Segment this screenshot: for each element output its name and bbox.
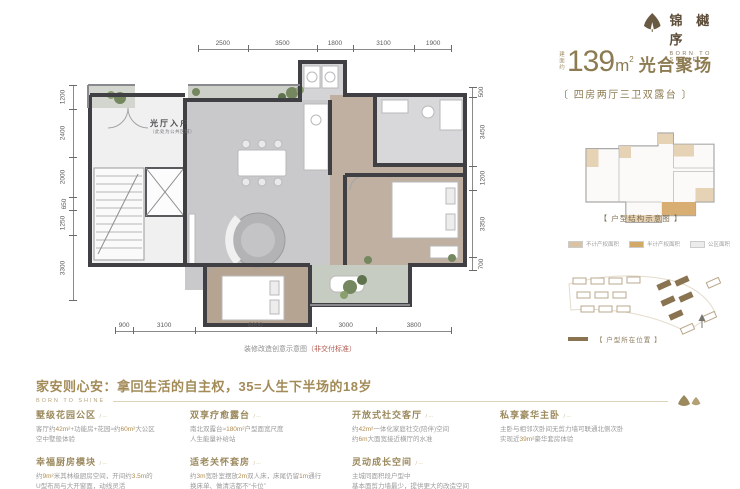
- feature-title: 墅级花园公区 / ⋯: [36, 408, 186, 421]
- feature-body: 主卧与相邻次卧间无剪力墙可联通北侧次卧实现近39m²豪华套房体验: [500, 425, 680, 445]
- plan-caption: 装修改造创意示意图（非交付标准）: [150, 344, 450, 354]
- dimension-value: 2000: [62, 157, 74, 197]
- plan-caption-note: （非交付标准）: [307, 346, 356, 353]
- dimension-value: 3000: [316, 322, 376, 332]
- legend-label: 不计产权面积: [586, 240, 619, 248]
- legend-label: 公区面积: [708, 240, 730, 248]
- entry-hall-label: 光厅入户: [150, 118, 190, 129]
- feature-title: 灵动成长空间 / ⋯: [352, 455, 498, 468]
- floorplan-poster-page: 25003500180031001900 9003100600030003800…: [0, 0, 740, 489]
- unit-subtitle: 〔 四房两厅三卫双露台 〕: [558, 86, 693, 101]
- feature-body: 约3m宽卧室摆放2m双人床，床尾仍留1m通行换床单、做清洁都不“卡位”: [190, 472, 348, 489]
- footer-brandline: BORN TO SHINE: [36, 394, 704, 408]
- feature-title: 私享豪华主卧 / ⋯: [500, 408, 680, 421]
- dimension-right: 500345012003350700: [472, 87, 484, 271]
- dimension-value: 3300: [62, 235, 74, 301]
- dimension-left: 12002400200065012503300: [62, 85, 74, 301]
- feature-title: 开放式社交客厅 / ⋯: [352, 408, 498, 421]
- legend-item: 公区面积: [690, 240, 730, 248]
- feature-body: 南北双露台≈180m²户型面宽尺度人生能量补给站: [190, 425, 348, 445]
- dimension-value: 3100: [353, 40, 415, 50]
- dimension-value: 3100: [133, 322, 195, 332]
- feature-title: 幸福厨房模块 / ⋯: [36, 455, 186, 468]
- structure-caption: 【 户型结构示意图 】: [556, 213, 726, 224]
- brand-name: 锦 樾 序: [669, 10, 740, 48]
- dimension-bottom: 9003100600030003800: [115, 322, 452, 332]
- area-unit: m2: [615, 56, 634, 74]
- legend-swatch: [629, 241, 644, 248]
- dimension-value: 2500: [198, 40, 248, 50]
- feature-column-2: 双享疗愈露台 / ⋯南北双露台≈180m²户型面宽尺度人生能量补给站适老关怀套房…: [190, 408, 348, 489]
- dimension-value: 6000: [195, 322, 315, 332]
- feature-column-4: 私享豪华主卧 / ⋯主卧与相邻次卧间无剪力墙可联通北侧次卧实现近39m²豪华套房…: [500, 408, 680, 455]
- dimension-value: 1250: [62, 210, 74, 235]
- dimension-value: 3450: [472, 97, 484, 166]
- ginkgo-leaf-icon: [642, 10, 662, 34]
- dimension-value: 3800: [376, 322, 452, 332]
- feature-body: 主城同面积段户型中基本面剪力墙最少，提供更大的改造空间: [352, 472, 498, 489]
- legend-item: 不计产权面积: [568, 240, 619, 248]
- legend-swatch: [568, 241, 583, 248]
- unit-slogan: 光合聚场: [639, 57, 713, 74]
- feature-title: 适老关怀套房 / ⋯: [190, 455, 348, 468]
- dimension-top: 25003500180031001900: [198, 40, 452, 50]
- feature-body: 客厅约42m²+功能房+花园≈约60m²大公区空中墅般体验: [36, 425, 186, 445]
- structure-legend: 不计产权面积半计产权面积公区面积: [568, 240, 730, 248]
- footer-headline: 家安则心安：拿回生活的自主权，35=人生下半场的18岁: [36, 376, 372, 395]
- legend-swatch: [690, 241, 705, 248]
- legend-item: 半计产权面积: [629, 240, 680, 248]
- entry-hall-note: （此处为公共区域）: [150, 129, 195, 135]
- unit-title: 建面约 139 m2 光合聚场: [557, 50, 713, 74]
- dimension-value: 650: [62, 197, 74, 210]
- dimension-value: 3500: [248, 40, 317, 50]
- feature-column-1: 墅级花园公区 / ⋯客厅约42m²+功能房+花园≈约60m²大公区空中墅般体验幸…: [36, 408, 186, 489]
- feature-body: 约9m²米其林级厨房空间，开间约3.5m的U型布局与大开窗面，动线灵活: [36, 472, 186, 489]
- dimension-value: 1200: [62, 85, 74, 109]
- footer-brand-text: BORN TO SHINE: [36, 398, 105, 404]
- dimension-value: 900: [115, 322, 133, 332]
- divider-line: [113, 401, 668, 402]
- dimension-value: 1900: [414, 40, 452, 50]
- feature-body: 约42m²一体化家庭社交(陪伴)空间约6m大面宽接近横厅的水准: [352, 425, 498, 445]
- feature-column-3: 开放式社交客厅 / ⋯约42m²一体化家庭社交(陪伴)空间约6m大面宽接近横厅的…: [352, 408, 498, 489]
- area-prefix: 建面约: [557, 51, 565, 71]
- dimension-value: 700: [472, 257, 484, 271]
- dimension-value: 2400: [62, 109, 74, 157]
- dimension-value: 3350: [472, 190, 484, 257]
- location-swatch: [568, 337, 588, 341]
- dimension-value: 1800: [317, 40, 353, 50]
- dimension-value: 1200: [472, 166, 484, 190]
- plan-caption-text: 装修改造创意示意图: [244, 346, 307, 353]
- double-leaf-icon: [676, 394, 704, 408]
- legend-label: 半计产权面积: [647, 240, 680, 248]
- feature-title: 双享疗愈露台 / ⋯: [190, 408, 348, 421]
- dimension-value: 500: [472, 87, 484, 97]
- area-number: 139: [567, 50, 614, 74]
- location-caption: 【 户型所在位置 】: [596, 334, 662, 344]
